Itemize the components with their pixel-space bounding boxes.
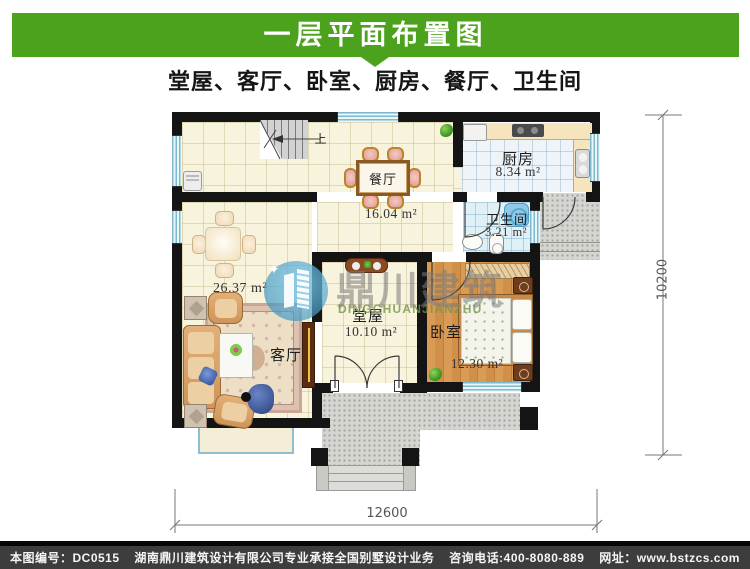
wall (417, 262, 427, 392)
pillar (311, 448, 328, 466)
pillow (512, 332, 532, 363)
door-jamb (394, 380, 403, 392)
phone-number: 咨询电话:400-8080-889 (449, 549, 584, 566)
dining-table: 餐厅 (356, 160, 410, 196)
area-label-bedroom: 12.30 m² (444, 356, 510, 372)
coffee-table (219, 333, 253, 378)
kitchen-sink-icon (575, 149, 590, 178)
washer-line (186, 179, 199, 181)
area-label-kitchen: 8.34 m² (490, 164, 546, 180)
figure-decor-dot (241, 392, 251, 402)
dimension-height: 10200 (656, 250, 671, 310)
toilet-bowl (492, 243, 503, 254)
window (172, 135, 182, 187)
terrace-step-line (540, 242, 600, 243)
dimension-width: 12600 (355, 506, 419, 521)
page-title: 一层平面布置图 (12, 13, 739, 57)
title-banner: 一层平面布置图 (12, 13, 739, 57)
end-table-decor (189, 409, 205, 425)
wall (400, 383, 427, 393)
sink-basin (579, 153, 587, 162)
wall (453, 192, 467, 202)
area-label-dining: 16.04 m² (356, 206, 426, 222)
floor-plan-page: 一层平面布置图 堂屋、客厅、卧室、厨房、餐厅、卫生间 (0, 0, 750, 569)
website-url: 网址：www.bstzcs.com (599, 549, 740, 566)
bay-window (198, 428, 294, 454)
door-jamb (330, 380, 339, 392)
entry-steps (316, 465, 416, 491)
room-label-dining: 餐厅 (369, 169, 397, 188)
wall (453, 112, 463, 167)
figure-decor (247, 384, 274, 414)
armchair-cushion (221, 401, 249, 423)
burner-icon (517, 127, 524, 134)
end-table (184, 404, 207, 428)
step-rail-left (317, 466, 329, 490)
area-label-hall: 10.10 m² (340, 324, 402, 340)
plate-decor (373, 262, 381, 270)
terrace-step-line (540, 251, 600, 252)
chair (215, 211, 234, 226)
page-subtitle: 堂屋、客厅、卧室、厨房、餐厅、卫生间 (0, 64, 750, 96)
wall (520, 382, 540, 392)
wall (182, 192, 317, 202)
stairs-up-label: 上 (313, 130, 329, 147)
step-tread-line (328, 481, 404, 482)
step-tread-line (328, 473, 404, 474)
tea-table (205, 227, 241, 261)
window (590, 133, 600, 182)
terrace-right (540, 193, 600, 260)
wall (312, 252, 322, 322)
room-label-hall: 堂屋 (350, 305, 386, 326)
end-table (184, 296, 207, 320)
chair (215, 263, 234, 278)
burner-icon (531, 127, 538, 134)
nightstand (513, 364, 533, 381)
armchair-cushion (215, 299, 237, 318)
plate-decor (352, 262, 360, 270)
window (172, 210, 182, 244)
mattress (461, 298, 511, 364)
stove-icon (512, 124, 544, 137)
sofa-cushion (188, 332, 214, 354)
fridge-icon (463, 124, 487, 141)
area-label-living: 26.37 m² (208, 281, 272, 297)
pillar (520, 407, 538, 430)
washer-line (186, 175, 199, 177)
window (337, 112, 399, 122)
sink-basin (579, 165, 587, 174)
chair (242, 235, 256, 254)
chair (192, 235, 206, 254)
pillow (512, 299, 532, 330)
footer-bar: 本图编号：DC0515 湖南鼎川建筑设计有限公司专业承接全国别墅设计业务 咨询电… (0, 541, 750, 569)
company-name: 湖南鼎川建筑设计有限公司专业承接全国别墅设计业务 (134, 549, 434, 566)
flower-decor (364, 261, 371, 268)
pillar (402, 448, 419, 466)
flower-decor (229, 343, 243, 357)
end-table-decor (189, 301, 205, 317)
window (462, 382, 522, 392)
nightstand (513, 277, 533, 294)
drawing-number: 本图编号：DC0515 (10, 549, 120, 566)
dim-tick (170, 520, 602, 530)
room-label-bedroom: 卧室 (428, 321, 464, 342)
tv-screen-line (308, 328, 310, 382)
step-rail-right (403, 466, 415, 490)
hall-sideboard (345, 258, 388, 273)
area-label-bathroom: 3.21 m² (478, 225, 534, 240)
washing-machine-icon (183, 171, 202, 191)
room-label-living: 客厅 (268, 344, 304, 365)
wall (466, 252, 540, 262)
wall (586, 192, 600, 202)
